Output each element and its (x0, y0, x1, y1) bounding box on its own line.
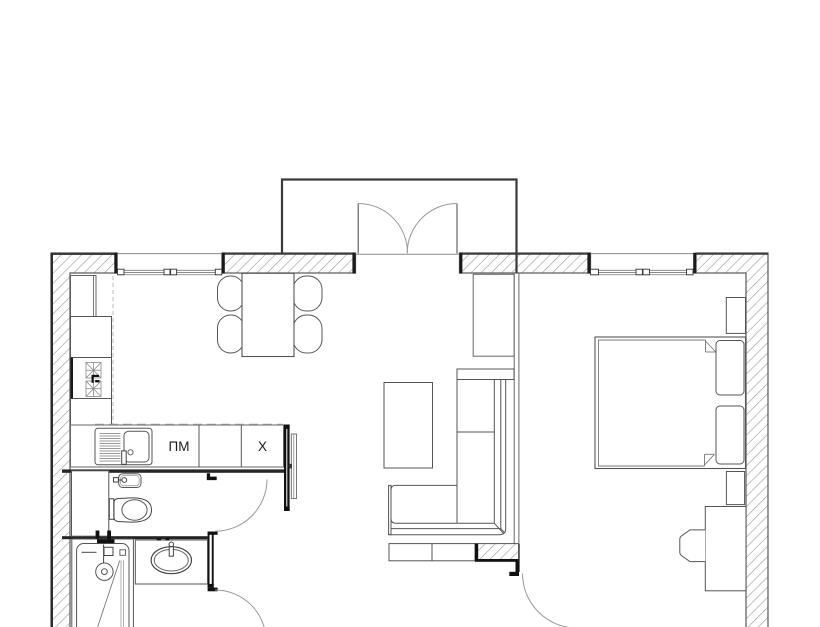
svg-text:X: X (258, 439, 267, 454)
svg-text:ПМ: ПМ (169, 439, 190, 454)
